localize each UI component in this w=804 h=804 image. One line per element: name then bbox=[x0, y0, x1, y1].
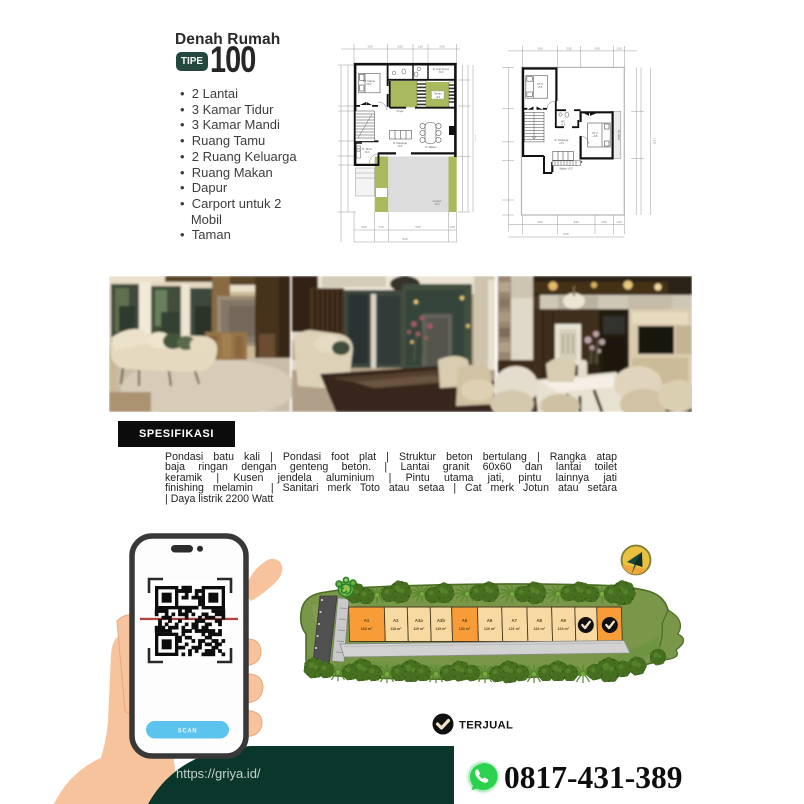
svg-text:3.00: 3.00 bbox=[537, 220, 543, 224]
svg-text:119 m²: 119 m² bbox=[413, 627, 425, 631]
svg-text:Rg Jemur: Rg Jemur bbox=[617, 130, 620, 141]
svg-text:Balkon +3.5: Balkon +3.5 bbox=[560, 168, 573, 171]
svg-text:+3.5: +3.5 bbox=[538, 86, 543, 89]
svg-text:A9: A9 bbox=[560, 618, 566, 623]
svg-text:+3.5: +3.5 bbox=[559, 142, 564, 145]
svg-text:123 m²: 123 m² bbox=[558, 627, 570, 631]
svg-text:R. Makan: R. Makan bbox=[425, 145, 437, 149]
svg-text:WC: WC bbox=[561, 121, 565, 124]
svg-text:+3.5: +3.5 bbox=[561, 124, 566, 126]
svg-text:1.100: 1.100 bbox=[475, 135, 477, 142]
svg-text:±0.0: ±0.0 bbox=[435, 203, 440, 206]
svg-text:2.50: 2.50 bbox=[601, 220, 607, 224]
svg-text:A1: A1 bbox=[364, 618, 370, 623]
svg-text:A3a: A3a bbox=[415, 618, 423, 623]
svg-text:1.50: 1.50 bbox=[417, 45, 423, 49]
svg-text:119 m²: 119 m² bbox=[435, 627, 447, 631]
svg-text:3.50: 3.50 bbox=[573, 220, 579, 224]
svg-text:121 m²: 121 m² bbox=[509, 627, 521, 631]
svg-text:122 m²: 122 m² bbox=[534, 627, 546, 631]
svg-text:2.50: 2.50 bbox=[439, 45, 445, 49]
svg-text:+0.0: +0.0 bbox=[435, 96, 440, 99]
svg-text:2.00: 2.00 bbox=[361, 225, 367, 229]
svg-text:+3.5: +3.5 bbox=[593, 135, 598, 138]
svg-text:A5: A5 bbox=[462, 618, 468, 623]
svg-text:3.00: 3.00 bbox=[594, 47, 600, 51]
svg-text:3.00: 3.00 bbox=[367, 45, 373, 49]
svg-text:1.00: 1.00 bbox=[449, 225, 455, 229]
svg-text:A2: A2 bbox=[393, 618, 399, 623]
svg-text:TERJUAL: TERJUAL bbox=[459, 720, 513, 732]
svg-text:120 m²: 120 m² bbox=[484, 627, 496, 631]
svg-text:A7: A7 bbox=[512, 618, 518, 623]
svg-text:133 m²: 133 m² bbox=[459, 627, 471, 631]
svg-text:A3b: A3b bbox=[437, 618, 445, 623]
svg-text:SCAN: SCAN bbox=[178, 729, 197, 735]
svg-text:Foyer: Foyer bbox=[397, 109, 404, 113]
svg-text:8.00: 8.00 bbox=[402, 237, 408, 241]
svg-text:A8: A8 bbox=[536, 618, 542, 623]
svg-text:3.00: 3.00 bbox=[537, 47, 543, 51]
svg-text:±0.0: ±0.0 bbox=[367, 83, 372, 86]
svg-text:1.00: 1.00 bbox=[616, 220, 622, 224]
svg-text:1.25: 1.25 bbox=[378, 225, 384, 229]
svg-text:±0.0: ±0.0 bbox=[398, 145, 403, 148]
svg-text:1.100: 1.100 bbox=[653, 138, 657, 145]
svg-text:163 m²: 163 m² bbox=[361, 627, 373, 631]
svg-text:3.00: 3.00 bbox=[397, 45, 403, 49]
svg-text:5.50: 5.50 bbox=[415, 225, 421, 229]
svg-text:A6: A6 bbox=[487, 618, 493, 623]
svg-text:118 m²: 118 m² bbox=[390, 627, 402, 631]
svg-text:±0.0: ±0.0 bbox=[439, 71, 444, 74]
svg-text:1.00: 1.00 bbox=[616, 47, 622, 51]
svg-text:2.50: 2.50 bbox=[566, 47, 572, 51]
svg-text:±0.0: ±0.0 bbox=[365, 151, 370, 154]
svg-text:8.00: 8.00 bbox=[563, 232, 569, 236]
